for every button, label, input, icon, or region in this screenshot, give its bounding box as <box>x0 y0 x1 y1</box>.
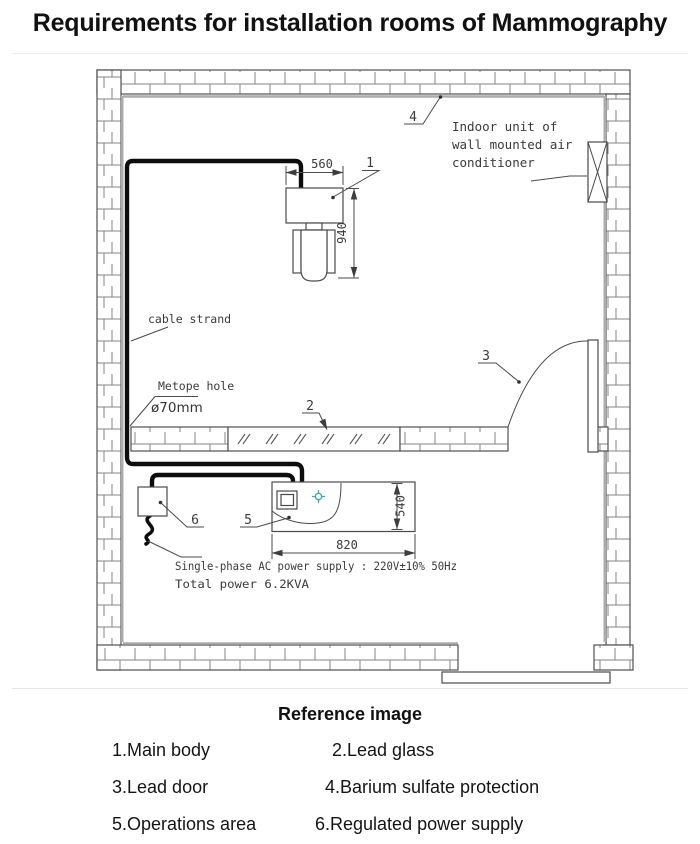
svg-text:Indoor unit of: Indoor unit of <box>452 119 557 134</box>
wall-right-foot <box>594 645 633 670</box>
svg-text:540: 540 <box>394 495 408 517</box>
wall-bottom <box>97 645 458 670</box>
callout-lead-door: 3 <box>478 349 521 384</box>
partition-wall-left <box>131 427 228 451</box>
svg-text:conditioner: conditioner <box>452 155 535 170</box>
legend-item-power-supply: 6.Regulated power supply <box>315 814 523 835</box>
svg-text:560: 560 <box>311 157 333 171</box>
svg-text:2: 2 <box>306 399 314 414</box>
legend-item-lead-glass: 2.Lead glass <box>332 740 434 761</box>
legend-heading: Reference image <box>0 704 700 725</box>
partition-wall-right <box>400 427 508 451</box>
air-conditioner-leader <box>531 176 587 181</box>
regulated-power-supply-box <box>138 487 167 516</box>
legend-item-lead-door: 3.Lead door <box>112 777 208 798</box>
entrance-door-leaf <box>442 672 610 683</box>
svg-text:cable strand: cable strand <box>148 312 231 326</box>
svg-text:3: 3 <box>482 349 490 364</box>
monitor-screen <box>281 495 294 506</box>
callout-lead-glass: 2 <box>302 399 327 430</box>
power-cord-leader <box>148 541 202 557</box>
power-supply-note-line2: Total power 6.2KVA <box>175 577 309 591</box>
wall-right <box>606 94 630 645</box>
power-supply-note-line1: Single-phase AC power supply : 220V±10% … <box>175 559 457 573</box>
legend-item-barium-sulfate: 4.Barium sulfate protection <box>325 777 539 798</box>
svg-text:5: 5 <box>244 513 252 528</box>
bottom-separator <box>12 688 688 689</box>
dimension-desk-width: 820 <box>272 534 415 559</box>
gantry-column <box>301 230 327 281</box>
legend-item-main-body: 1.Main body <box>112 740 210 761</box>
metope-hole-label: Metope hole ø70mm <box>130 379 234 426</box>
lead-door-leaf <box>588 340 598 452</box>
air-conditioner-symbol <box>588 142 607 202</box>
svg-text:1: 1 <box>366 156 374 171</box>
svg-text:wall mounted air: wall mounted air <box>452 137 573 152</box>
mains-power-cord <box>146 516 152 544</box>
door-swing-arc <box>508 341 588 427</box>
svg-text:6: 6 <box>191 513 199 528</box>
svg-text:Metope hole: Metope hole <box>158 379 234 393</box>
cable-strand-label: cable strand <box>131 312 231 341</box>
hole-diameter-label: ø70mm <box>151 400 203 416</box>
document-page: Requirements for installation rooms of M… <box>0 0 700 844</box>
wall-top <box>97 70 630 94</box>
svg-text:4: 4 <box>409 110 417 125</box>
wall-left <box>97 70 121 670</box>
lead-glass-panel <box>228 427 400 451</box>
callout-barium-protection: 4 <box>404 95 442 125</box>
air-conditioner-label: Indoor unit of wall mounted air conditio… <box>452 119 587 181</box>
legend-item-operations-area: 5.Operations area <box>112 814 256 835</box>
svg-text:820: 820 <box>336 538 358 552</box>
svg-text:940: 940 <box>335 222 349 244</box>
